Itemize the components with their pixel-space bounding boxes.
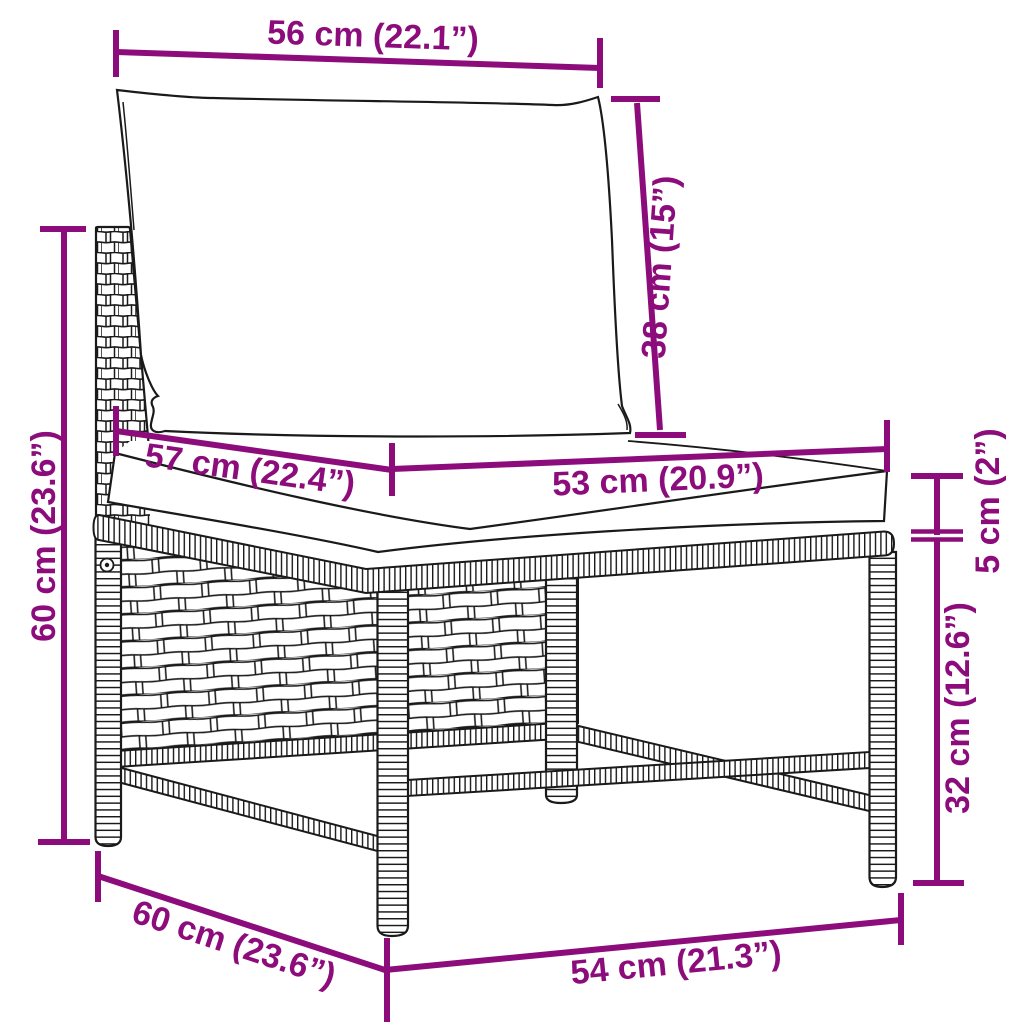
svg-text:5 cm (2”): 5 cm (2”) bbox=[969, 428, 1007, 574]
svg-text:32 cm (12.6”): 32 cm (12.6”) bbox=[939, 602, 977, 814]
svg-text:60 cm (23.6”): 60 cm (23.6”) bbox=[25, 430, 63, 642]
svg-text:56 cm (22.1”): 56 cm (22.1”) bbox=[267, 14, 480, 59]
